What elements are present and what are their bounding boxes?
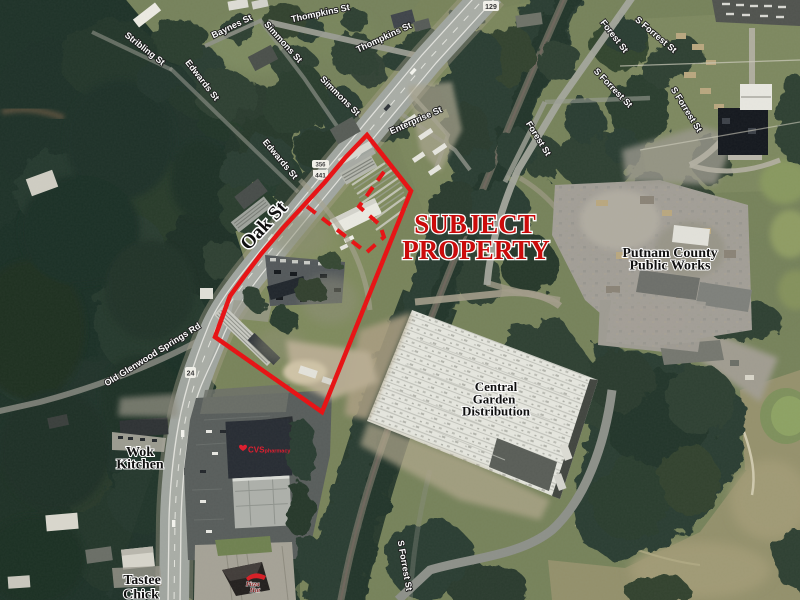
svg-text:PROPERTY: PROPERTY [402, 235, 550, 265]
svg-text:Public Works: Public Works [629, 259, 711, 274]
svg-text:129: 129 [485, 4, 497, 11]
svg-text:CVS: CVS [248, 446, 265, 455]
svg-text:Kitchen: Kitchen [116, 458, 164, 473]
svg-text:Distribution: Distribution [462, 404, 531, 419]
svg-text:Tastee: Tastee [123, 573, 161, 588]
svg-text:24: 24 [187, 371, 195, 378]
svg-text:Chick: Chick [123, 588, 159, 600]
svg-text:356: 356 [315, 163, 326, 169]
svg-text:441: 441 [315, 173, 326, 180]
svg-text:pharmacy: pharmacy [265, 448, 292, 454]
svg-text:Hut: Hut [249, 587, 260, 594]
